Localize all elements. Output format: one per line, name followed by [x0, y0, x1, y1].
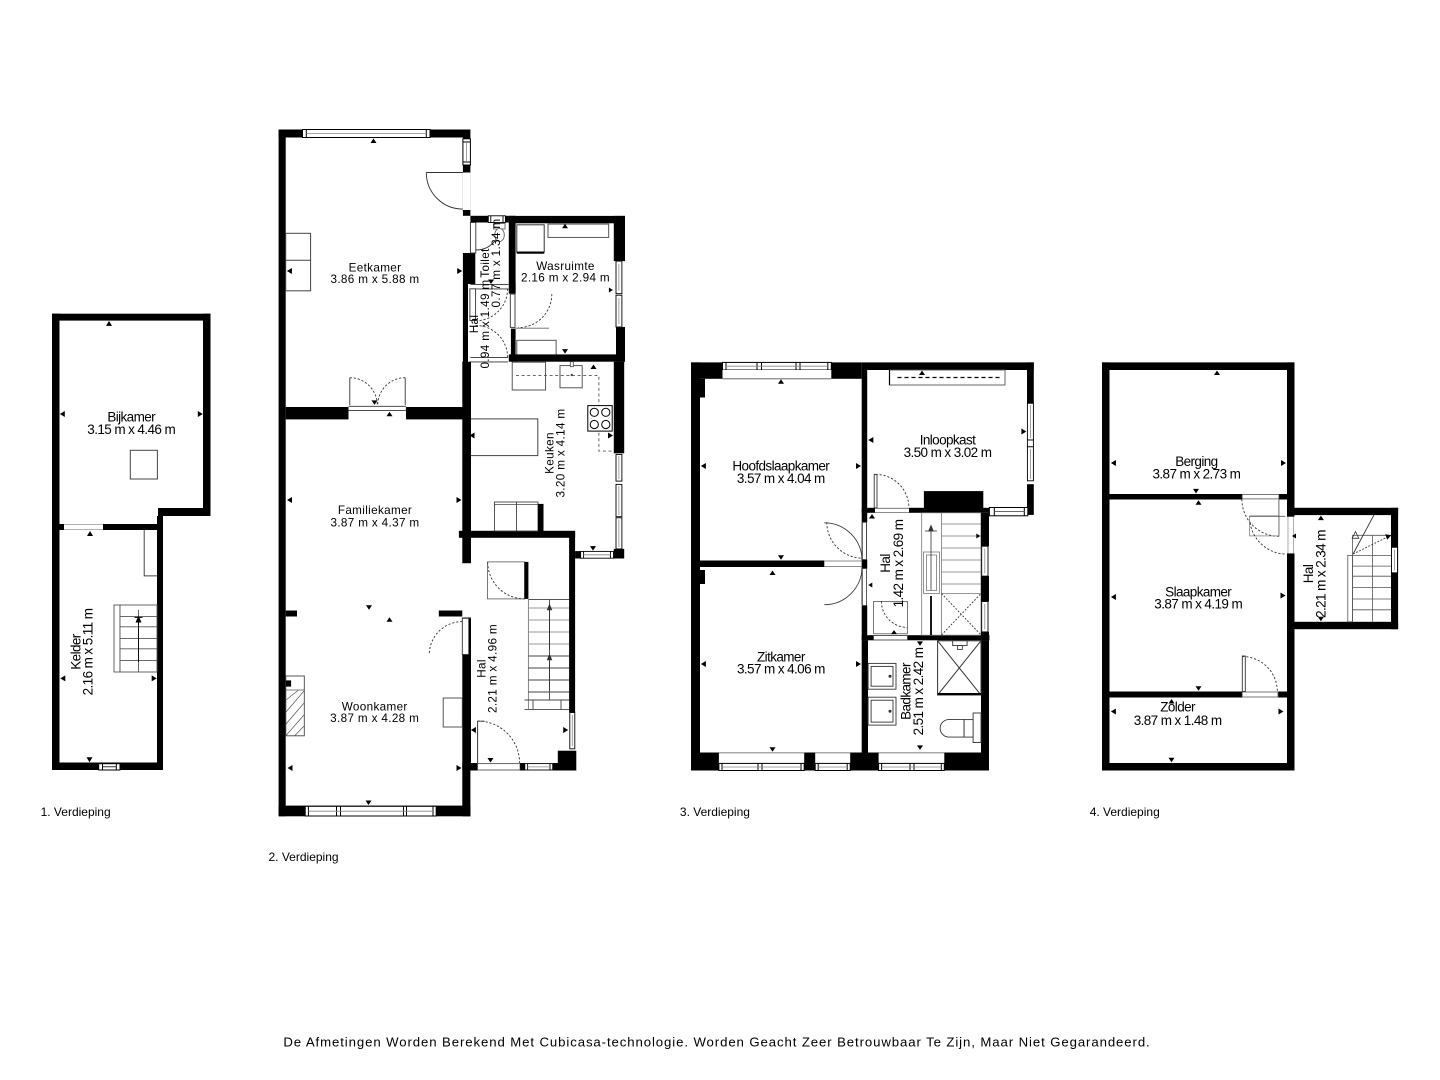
svg-text:1.42 m x 2.69 m: 1.42 m x 2.69 m: [891, 519, 906, 607]
svg-text:2.21 m x 4.96 m: 2.21 m x 4.96 m: [487, 624, 500, 713]
svg-text:2.51 m x 2.42 m: 2.51 m x 2.42 m: [911, 647, 926, 735]
svg-text:3.15 m x 4.46 m: 3.15 m x 4.46 m: [87, 422, 175, 437]
svg-text:3.50 m x 3.02 m: 3.50 m x 3.02 m: [904, 445, 992, 460]
svg-text:De Afmetingen Worden Berekend: De Afmetingen Worden Berekend Met Cubica…: [283, 1035, 1150, 1050]
svg-text:3.57 m x 4.06 m: 3.57 m x 4.06 m: [737, 662, 825, 677]
svg-text:3.87 m x 4.28 m: 3.87 m x 4.28 m: [330, 712, 419, 725]
svg-text:4. Verdieping: 4. Verdieping: [1090, 805, 1160, 819]
svg-text:3.86 m x 5.88 m: 3.86 m x 5.88 m: [330, 273, 419, 286]
svg-text:3.57 m x 4.04 m: 3.57 m x 4.04 m: [737, 471, 825, 486]
svg-text:3.87 m x 4.19 m: 3.87 m x 4.19 m: [1154, 597, 1242, 612]
svg-text:2.21 m x 2.34 m: 2.21 m x 2.34 m: [1314, 530, 1329, 618]
svg-text:3.20 m x 4.14 m: 3.20 m x 4.14 m: [554, 408, 567, 497]
svg-text:0.94 m x 1.49 m: 0.94 m x 1.49 m: [479, 279, 492, 368]
svg-text:Familiekamer: Familiekamer: [338, 504, 412, 517]
svg-text:2.16 m x 2.94 m: 2.16 m x 2.94 m: [521, 272, 610, 285]
svg-text:3.87 m x 1.48 m: 3.87 m x 1.48 m: [1134, 713, 1222, 728]
svg-text:2. Verdieping: 2. Verdieping: [269, 850, 339, 864]
svg-text:3.87 m x 4.37 m: 3.87 m x 4.37 m: [330, 516, 419, 529]
svg-text:1. Verdieping: 1. Verdieping: [41, 805, 111, 819]
svg-text:3. Verdieping: 3. Verdieping: [680, 805, 750, 819]
svg-text:2.16 m x 5.11 m: 2.16 m x 5.11 m: [81, 608, 96, 695]
svg-text:3.87 m x 2.73 m: 3.87 m x 2.73 m: [1153, 466, 1241, 481]
